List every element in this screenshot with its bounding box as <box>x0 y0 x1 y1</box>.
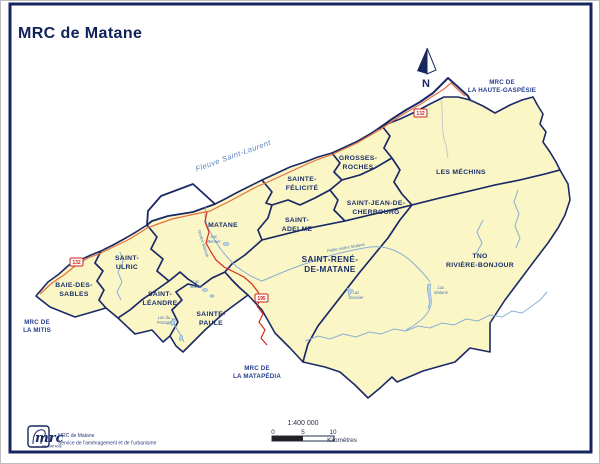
scale-ratio: 1:400 000 <box>287 420 318 427</box>
mrc-matane-map: MRC de Matane <box>0 0 600 464</box>
route-195-shield-label: 195 <box>257 296 266 302</box>
label-sainte-paule-2: PAULE <box>199 320 223 327</box>
label-sainte-paule-1: SAINTE- <box>196 311 225 318</box>
page-title: MRC de Matane <box>18 25 142 42</box>
credit-dept: Service de l'aménagement et de l'urbanis… <box>58 441 157 447</box>
label-tno-1: TNO <box>472 253 487 260</box>
label-la-matapedia-1: MRC DE <box>244 365 270 372</box>
label-lac-du-portage-2: Portage <box>157 320 172 325</box>
north-arrow-label: N <box>422 78 430 90</box>
label-saint-rene-2: DE-MATANE <box>304 265 356 274</box>
label-baie-des-sables-1: BAIE-DES- <box>55 282 92 289</box>
scale-tick-10: 10 <box>329 429 337 436</box>
label-saint-adelme-1: SAINT- <box>285 217 309 224</box>
label-grosses-roches-1: GROSSES- <box>339 155 377 162</box>
label-saint-ulric-1: SAINT- <box>115 255 139 262</box>
map-sheet: MRC de Matane <box>0 0 600 464</box>
label-les-mechins: LES MÉCHINS <box>436 167 486 176</box>
label-la-mitis-2: LA MITIS <box>23 327 51 334</box>
label-la-mitis-1: MRC DE <box>24 319 50 326</box>
label-haute-gaspesie-1: MRC DE <box>489 79 515 86</box>
lac-petit-shape <box>210 295 214 297</box>
label-saint-leandre-1: SAINT- <box>148 291 172 298</box>
label-saint-adelme-2: ADELME <box>282 226 313 233</box>
label-grosses-roches-2: ROCHES <box>343 164 374 171</box>
label-saint-jean-1: SAINT-JEAN-DE- <box>347 200 406 207</box>
label-saint-rene-1: SAINT-RENÉ- <box>302 254 359 264</box>
lac-malfait-shape <box>203 289 208 292</box>
scale-tick-5: 5 <box>301 429 305 436</box>
scale-tick-0: 0 <box>271 429 275 436</box>
label-lac-bernier-2: Bernier <box>207 239 221 244</box>
label-sainte-felicite-1: SAINTE- <box>287 176 316 183</box>
scale-bar-fill <box>272 436 303 441</box>
label-saint-jean-2: CHERBOURG <box>352 209 399 216</box>
label-lac-duvivier-2: Duvivier <box>348 295 364 300</box>
label-haute-gaspesie-2: LA HAUTE-GASPÉSIE <box>468 86 536 94</box>
scale-unit: Kilomètres <box>327 437 357 444</box>
lac-bernier-shape <box>223 242 229 245</box>
label-saint-leandre-2: LÉANDRE <box>143 298 178 307</box>
route-132-shield-east-label: 132 <box>416 111 425 117</box>
label-saint-ulric-2: ULRIC <box>116 264 138 271</box>
label-la-matapedia-2: LA MATAPÉDIA <box>233 372 281 380</box>
label-matane: MATANE <box>208 222 238 229</box>
label-baie-des-sables-2: SABLES <box>59 291 89 298</box>
route-132-shield-west-label: 132 <box>72 260 81 266</box>
label-tno-2: RIVIÈRE-BONJOUR <box>446 260 514 269</box>
credit-org: MRC de Matane <box>58 433 95 439</box>
label-sainte-felicite-2: FÉLICITÉ <box>286 183 319 192</box>
label-lac-malfait-2: Malfait <box>190 284 203 289</box>
label-lac-matane-2: Matane <box>434 290 449 295</box>
